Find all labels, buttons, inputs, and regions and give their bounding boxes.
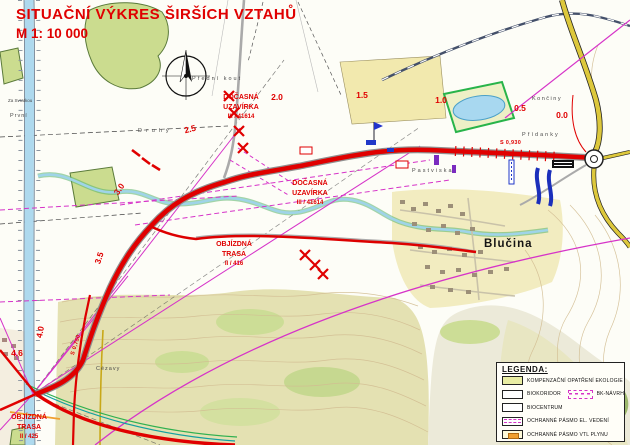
- vtl-plyn-swatch: [502, 430, 523, 439]
- place-label: Za Svratkou: [8, 98, 32, 103]
- biocentrum-swatch: [502, 403, 523, 412]
- place-label: Cézavy: [96, 366, 120, 372]
- detour-label-416: OBJÍZDNÁ TRASA II / 416: [203, 240, 265, 269]
- legend-item-vtl-plyn: OCHRANNÉ PÁSMO VTL PLYNU: [502, 428, 624, 442]
- place-label: Končiny: [532, 96, 562, 102]
- km-marker: 4.6: [11, 348, 23, 358]
- el-vedeni-swatch: [502, 417, 523, 426]
- km-marker: 1.0: [435, 95, 447, 105]
- place-label: Přídanky: [522, 132, 560, 138]
- biokoridor-swatch: [502, 390, 523, 399]
- km-marker: 2.0: [271, 92, 283, 102]
- bk-navrh-swatch: [568, 390, 593, 399]
- place-label: Druhý: [138, 128, 173, 134]
- town-label: Blučina: [484, 238, 533, 250]
- roundabout: [585, 150, 603, 168]
- place-label: Pastviska: [412, 168, 454, 174]
- place-label: První: [10, 113, 28, 119]
- closure-label-b: DOČASNÁ UZAVÍRKA III / 41614: [274, 179, 346, 208]
- eco-swatch: [502, 376, 523, 385]
- legend-item-el-vedeni: OCHRANNÉ PÁSMO EL. VEDENÍ: [502, 415, 624, 429]
- page-title: SITUAČNÍ VÝKRES ŠIRŠÍCH VZTAHŮ: [16, 6, 297, 23]
- biocentrum-pond: [444, 82, 514, 132]
- scale-label: M 1: 10 000: [16, 26, 88, 41]
- bridge-label: S 0,930: [500, 140, 521, 146]
- legend-title: LEGENDA:: [502, 365, 624, 374]
- legend-item-eco: KOMPENZAČNÍ OPATŘENÍ EKOLOGIE: [502, 374, 624, 388]
- km-marker: 0.5: [514, 103, 526, 113]
- place-label: Přední kout: [192, 76, 242, 82]
- detour-label-425: OBJÍZDNÁ TRASA II / 425: [0, 413, 58, 442]
- km-marker: 1.5: [356, 90, 368, 100]
- legend: LEGENDA: KOMPENZAČNÍ OPATŘENÍ EKOLOGIE B…: [496, 362, 625, 442]
- north-compass-icon: [162, 50, 210, 100]
- map-canvas: SITUAČNÍ VÝKRES ŠIRŠÍCH VZTAHŮ M 1: 10 0…: [0, 0, 630, 445]
- legend-item-biokoridor: BIOKORIDOR BK-NÁVRH: [502, 388, 624, 402]
- km-marker: 0.0: [556, 110, 568, 120]
- legend-item-biocentrum: BIOCENTRUM: [502, 401, 624, 415]
- closure-label-a: DOČASNÁ UZAVÍRKA III / 41614: [205, 93, 277, 122]
